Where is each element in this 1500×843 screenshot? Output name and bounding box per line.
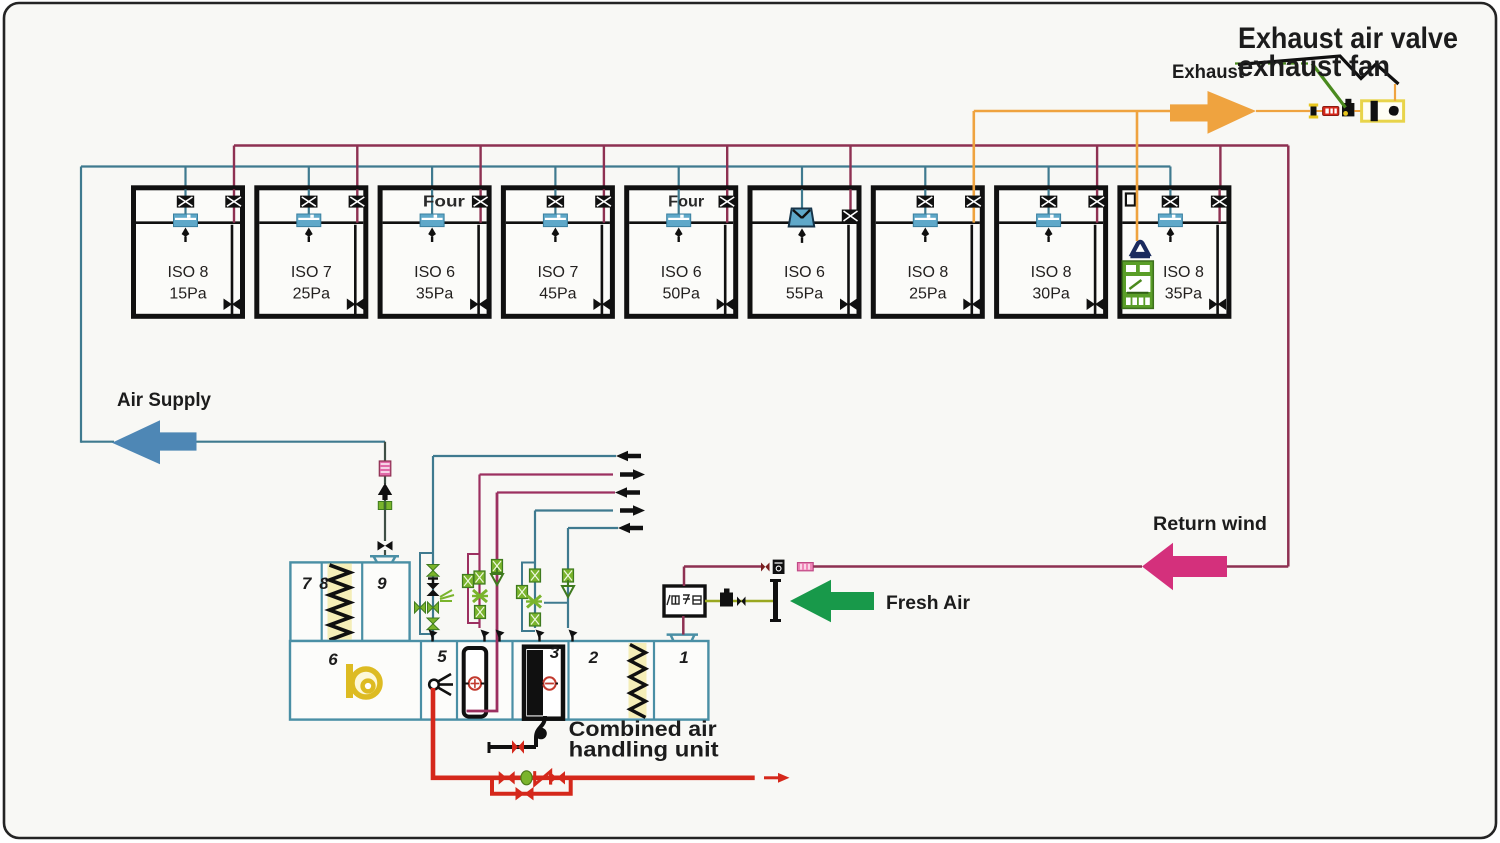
svg-text:ISO 8: ISO 8	[1031, 264, 1072, 281]
svg-text:ISO 8: ISO 8	[907, 264, 948, 281]
svg-text:45Pa: 45Pa	[539, 286, 576, 303]
svg-text:5: 5	[437, 647, 447, 666]
svg-text:50Pa: 50Pa	[663, 286, 700, 303]
svg-text:1: 1	[679, 648, 688, 667]
svg-text:25Pa: 25Pa	[909, 286, 946, 303]
svg-text:Return wind: Return wind	[1153, 514, 1267, 535]
svg-text:30Pa: 30Pa	[1032, 286, 1069, 303]
svg-text:Fresh Air: Fresh Air	[886, 593, 971, 614]
svg-text:7: 7	[302, 574, 313, 593]
svg-text:Four: Four	[423, 194, 465, 211]
svg-text:3: 3	[550, 643, 560, 662]
svg-text:2: 2	[588, 648, 599, 667]
svg-text:handling unit: handling unit	[569, 739, 719, 762]
svg-text:15Pa: 15Pa	[169, 286, 206, 303]
svg-text:Air Supply: Air Supply	[117, 390, 211, 411]
svg-text:ISO 7: ISO 7	[291, 264, 332, 281]
svg-text:exhaust fan: exhaust fan	[1238, 50, 1390, 83]
svg-text:ISO 6: ISO 6	[784, 264, 825, 281]
svg-text:35Pa: 35Pa	[416, 286, 453, 303]
svg-text:Exhaust: Exhaust	[1172, 62, 1245, 83]
svg-text:ISO 8: ISO 8	[168, 264, 209, 281]
svg-text:Four: Four	[668, 194, 704, 211]
svg-text:ISO 6: ISO 6	[661, 264, 702, 281]
svg-text:6: 6	[328, 650, 338, 669]
svg-text:25Pa: 25Pa	[293, 286, 330, 303]
svg-text:ISO 7: ISO 7	[537, 264, 578, 281]
svg-text:ISO 6: ISO 6	[414, 264, 455, 281]
svg-text:ISO 8: ISO 8	[1163, 264, 1204, 281]
svg-text:35Pa: 35Pa	[1165, 286, 1202, 303]
svg-text:55Pa: 55Pa	[786, 286, 823, 303]
svg-text:9: 9	[377, 574, 387, 593]
